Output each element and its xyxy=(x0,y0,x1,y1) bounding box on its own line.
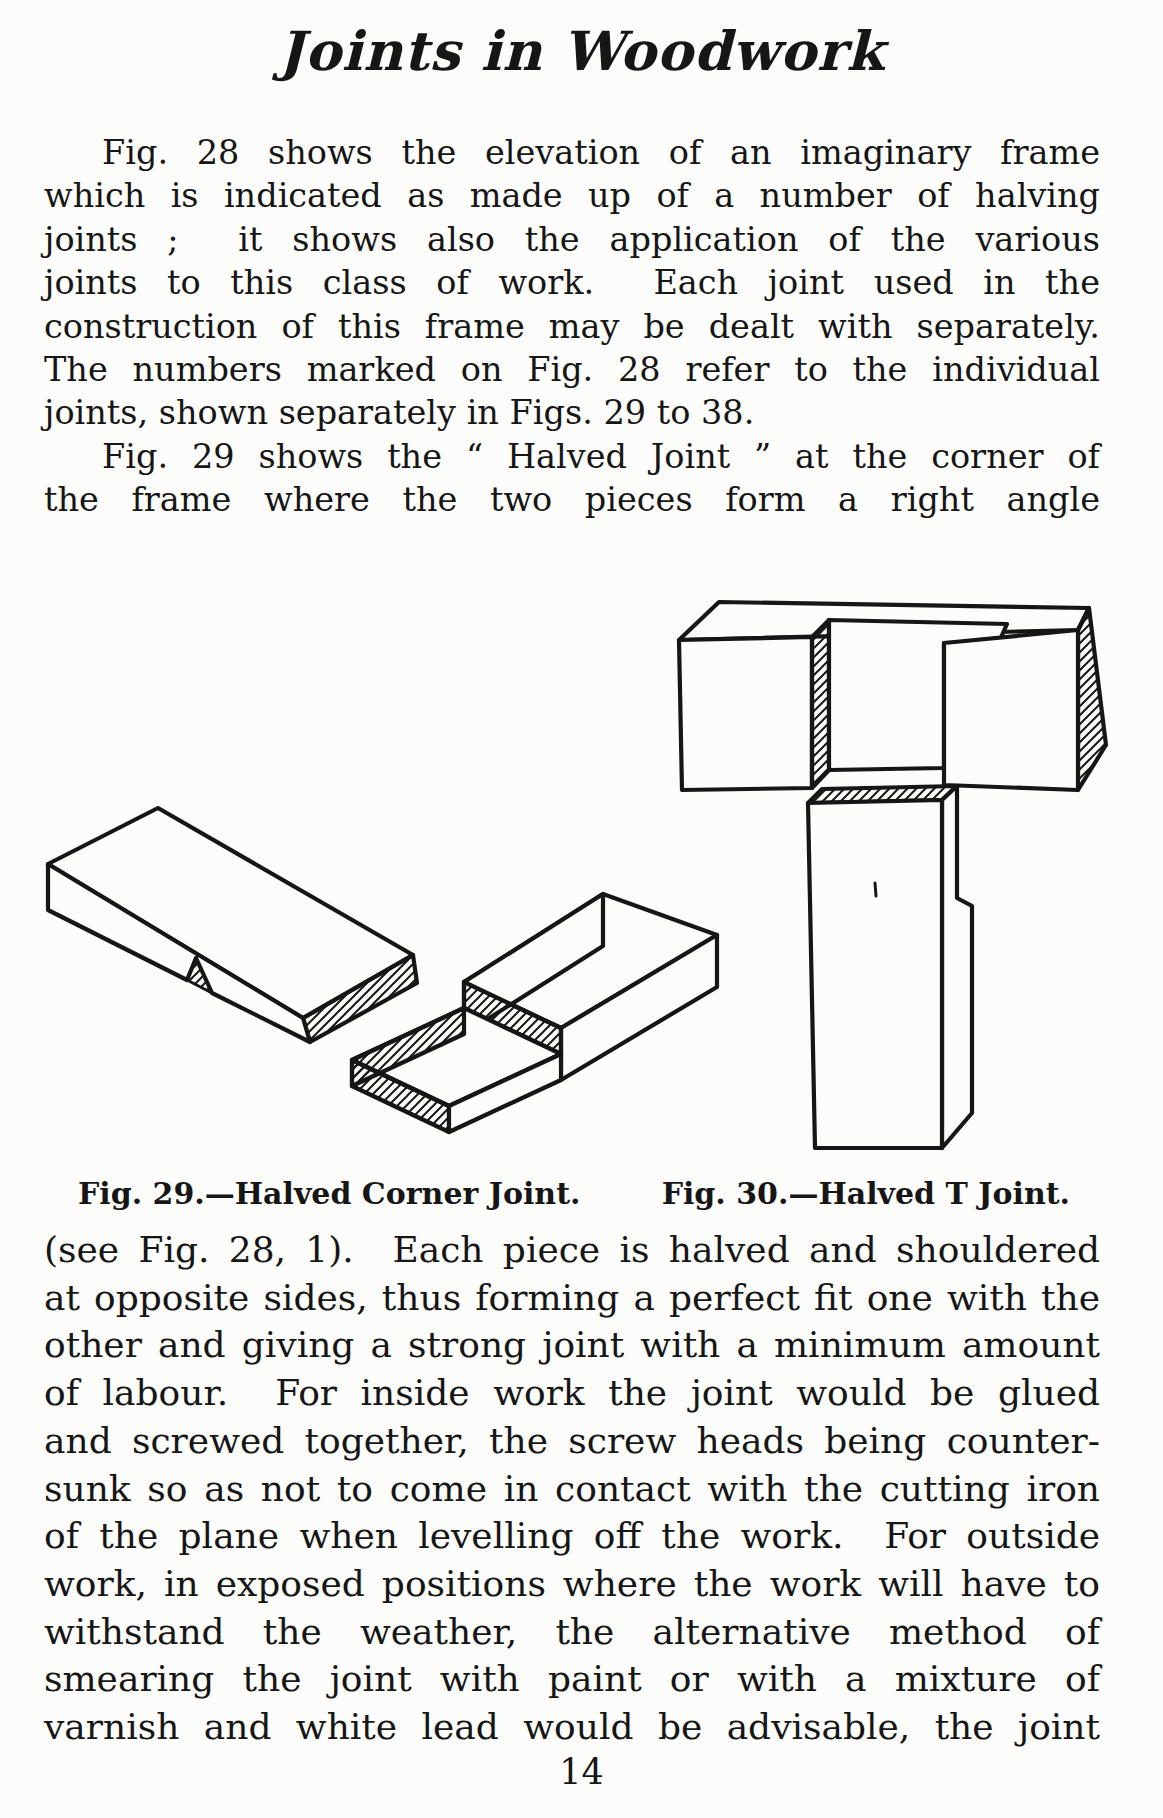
text-line: Fig. 28 shows the elevation of an imagin… xyxy=(44,131,1100,174)
fig29-caption: Fig. 29.—Halved Corner Joint. xyxy=(78,1176,580,1212)
text-line: sunk so as not to come in contact with t… xyxy=(44,1465,1100,1513)
text-line: joints ; it shows also the application o… xyxy=(44,218,1100,261)
text-line: other and giving a strong joint with a m… xyxy=(44,1321,1100,1369)
book-page: Joints in Woodwork Fig. 28 shows the ele… xyxy=(0,0,1163,1818)
text-line: varnish and white lead would be advisabl… xyxy=(44,1703,1100,1751)
text-line: withstand the weather, the alternative m… xyxy=(44,1608,1100,1656)
fig30-halved-t-joint-rail-illustration xyxy=(660,595,1120,800)
text-line: work, in exposed positions where the wor… xyxy=(44,1560,1100,1608)
text-line: construction of this frame may be dealt … xyxy=(44,305,1100,348)
text-line: the frame where the two pieces form a ri… xyxy=(44,478,1100,521)
figure-captions: Fig. 29.—Halved Corner Joint. Fig. 30.—H… xyxy=(44,1176,1100,1212)
text-line: at opposite sides, thus forming a perfec… xyxy=(44,1274,1100,1322)
fig30-halved-t-joint-post-illustration xyxy=(795,775,995,1160)
page-number: 14 xyxy=(0,1752,1163,1792)
text-line: smearing the joint with paint or with a … xyxy=(44,1655,1100,1703)
text-line: The numbers marked on Fig. 28 refer to t… xyxy=(44,348,1100,391)
fig29-halved-corner-joint-illustration xyxy=(30,690,760,1160)
text-line: which is indicated as made up of a numbe… xyxy=(44,174,1100,217)
text-line: and screwed together, the screw heads be… xyxy=(44,1417,1100,1465)
text-line: Fig. 29 shows the “ Halved Joint ” at th… xyxy=(44,435,1100,478)
fig30-caption: Fig. 30.—Halved T Joint. xyxy=(662,1176,1070,1212)
paragraphs-bottom: (see Fig. 28, 1). Each piece is halved a… xyxy=(44,1226,1100,1751)
page-title: Joints in Woodwork xyxy=(0,18,1163,86)
text-line: joints to this class of work. Each joint… xyxy=(44,261,1100,304)
text-line: (see Fig. 28, 1). Each piece is halved a… xyxy=(44,1226,1100,1274)
text-line: of labour. For inside work the joint wou… xyxy=(44,1369,1100,1417)
text-line: joints, shown separately in Figs. 29 to … xyxy=(44,391,1100,434)
text-line: of the plane when levelling off the work… xyxy=(44,1512,1100,1560)
paragraphs-top: Fig. 28 shows the elevation of an imagin… xyxy=(44,131,1100,522)
